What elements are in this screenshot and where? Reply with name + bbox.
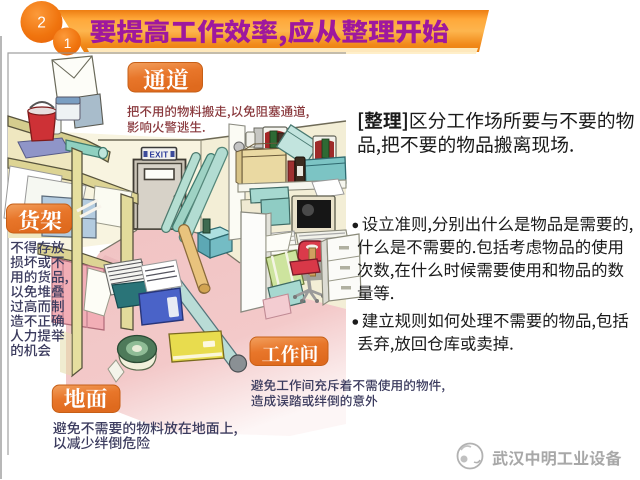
svg-text:2: 2 [37, 15, 46, 32]
svg-text:EXIT: EXIT [150, 151, 169, 160]
svg-text:1: 1 [64, 35, 72, 51]
